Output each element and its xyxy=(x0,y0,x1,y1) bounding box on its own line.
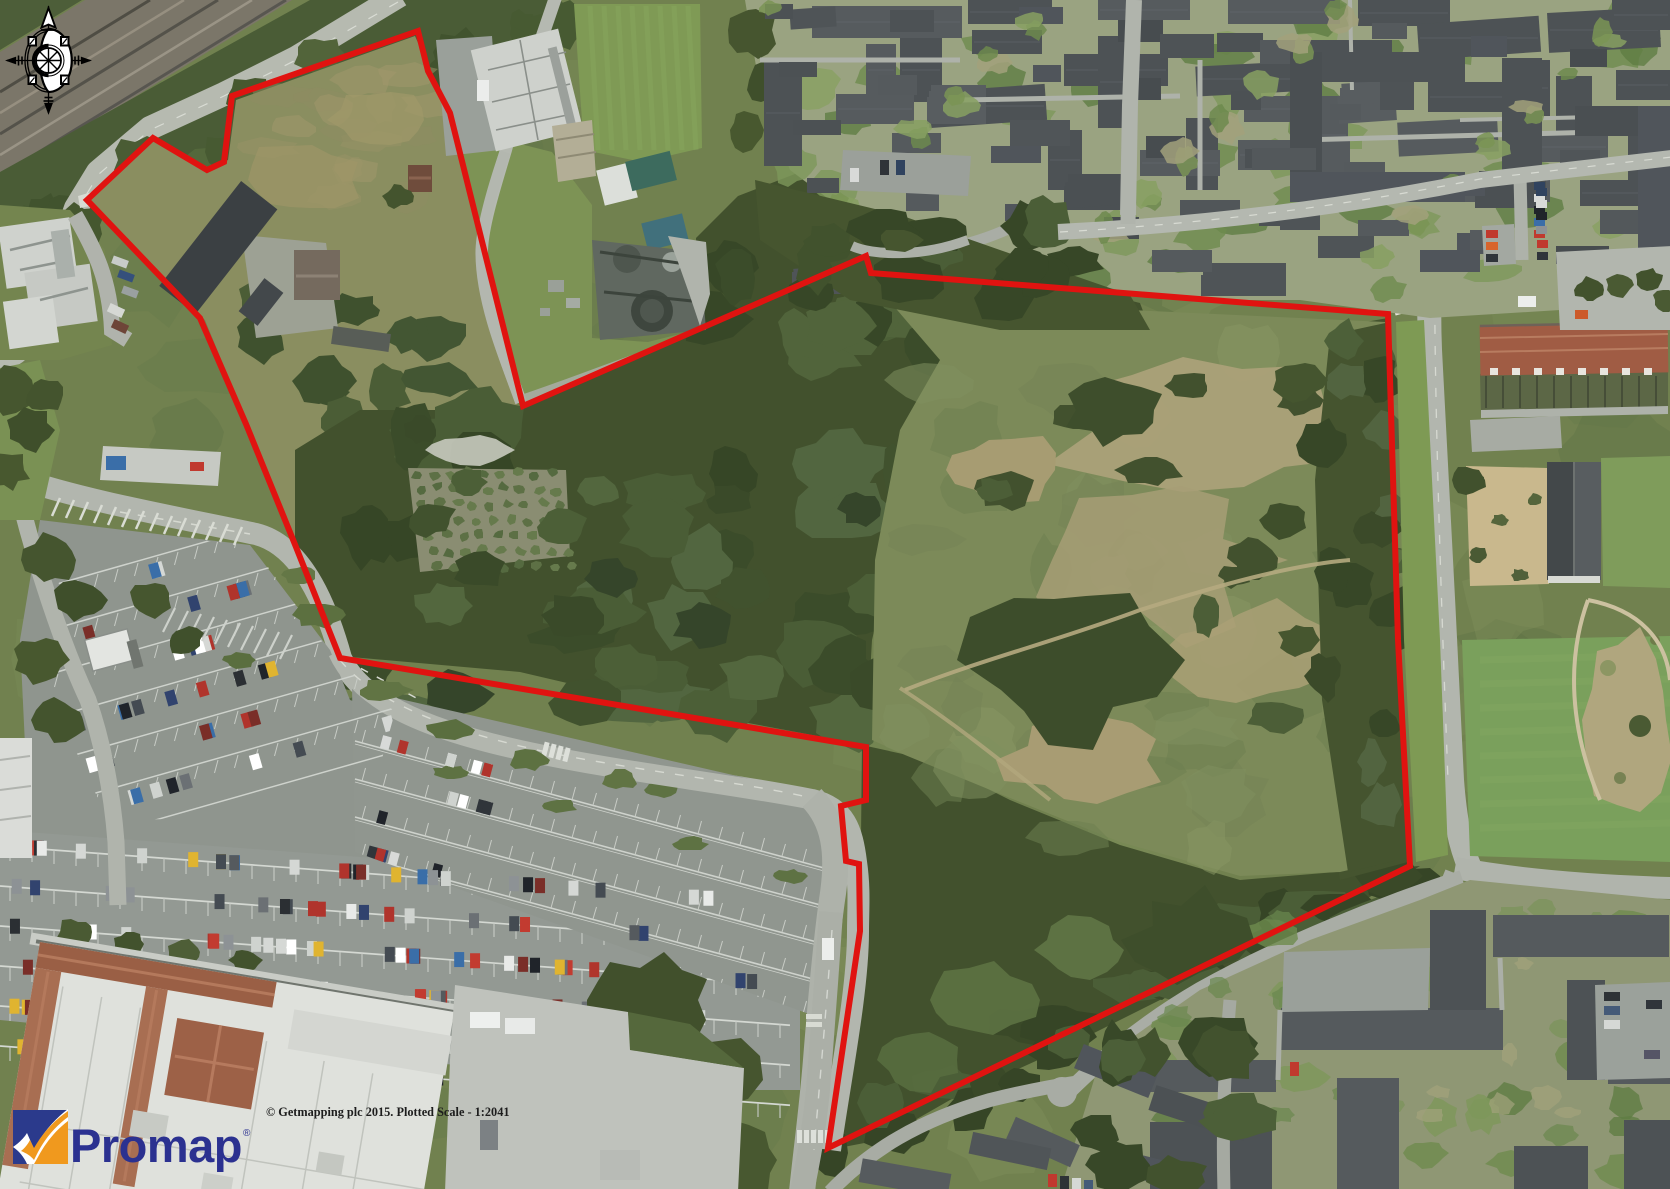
svg-text:®: ® xyxy=(243,1128,251,1139)
svg-text:Promap: Promap xyxy=(70,1119,242,1172)
svg-text:© Getmapping plc 2015. Plotted: © Getmapping plc 2015. Plotted Scale - 1… xyxy=(266,1105,510,1119)
